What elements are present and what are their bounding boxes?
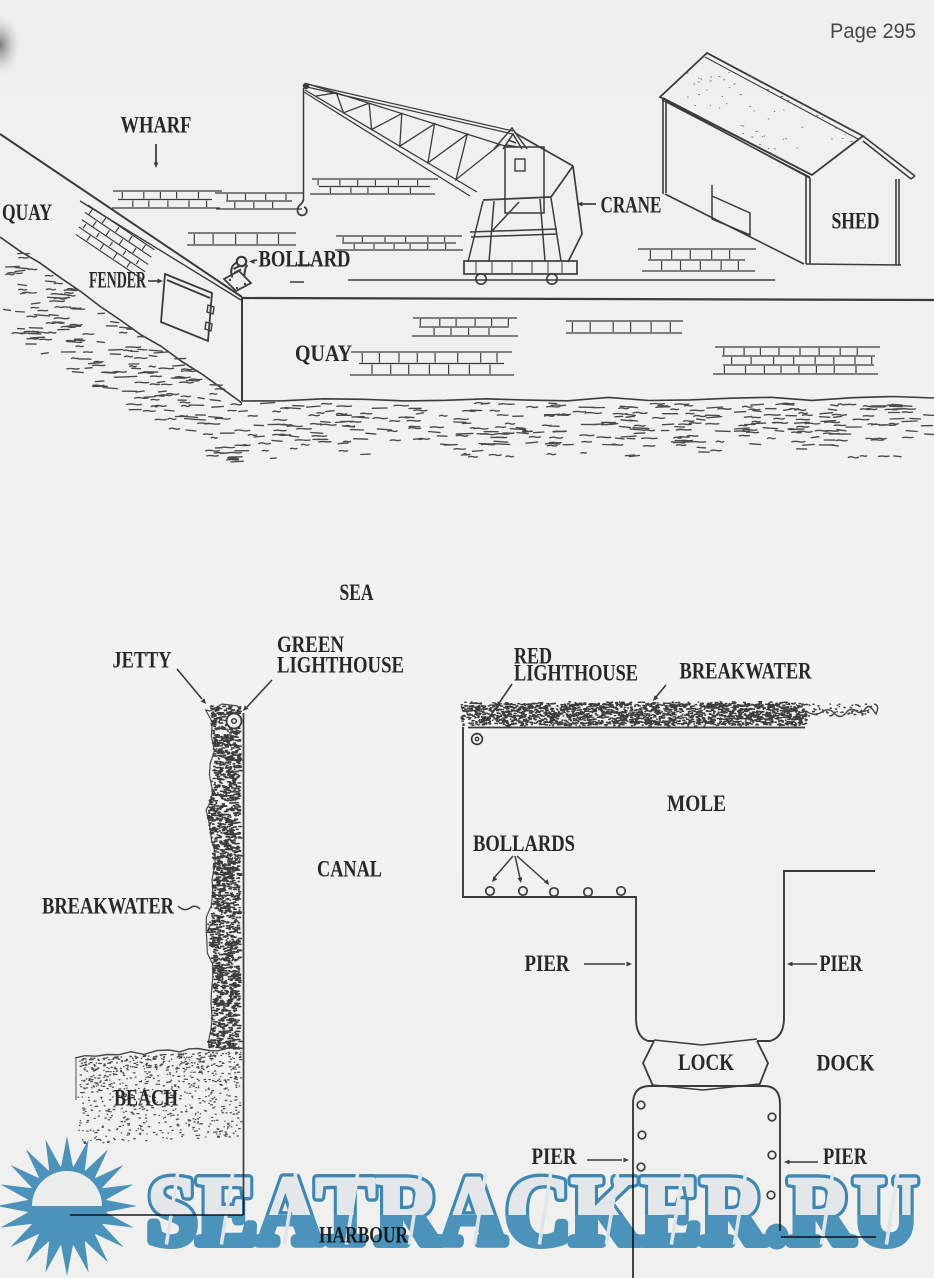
svg-text:SHED: SHED	[832, 209, 880, 234]
svg-text:PIER: PIER	[820, 951, 863, 976]
svg-text:QUAY: QUAY	[2, 200, 52, 225]
svg-text:LIGHTHOUSE: LIGHTHOUSE	[277, 653, 404, 678]
svg-text:FENDER: FENDER	[89, 268, 146, 293]
svg-text:BOLLARD: BOLLARD	[259, 247, 351, 272]
svg-text:LOCK: LOCK	[678, 1050, 734, 1075]
svg-text:BEACH: BEACH	[114, 1086, 178, 1111]
svg-text:BREAKWATER: BREAKWATER	[42, 894, 174, 919]
svg-text:MOLE: MOLE	[667, 791, 726, 816]
svg-text:LIGHTHOUSE: LIGHTHOUSE	[514, 661, 638, 686]
svg-text:DOCK: DOCK	[817, 1051, 875, 1076]
svg-text:SEA: SEA	[340, 580, 374, 605]
svg-text:CRANE: CRANE	[601, 193, 662, 218]
svg-text:BREAKWATER: BREAKWATER	[680, 659, 812, 684]
svg-text:CANAL: CANAL	[317, 857, 382, 882]
svg-text:WHARF: WHARF	[121, 113, 192, 138]
svg-text:Page 295: Page 295	[830, 20, 916, 43]
svg-text:BOLLARDS: BOLLARDS	[473, 831, 575, 856]
svg-text:JETTY: JETTY	[113, 648, 172, 673]
svg-text:QUAY: QUAY	[295, 341, 352, 366]
svg-text:PIER: PIER	[525, 951, 570, 976]
